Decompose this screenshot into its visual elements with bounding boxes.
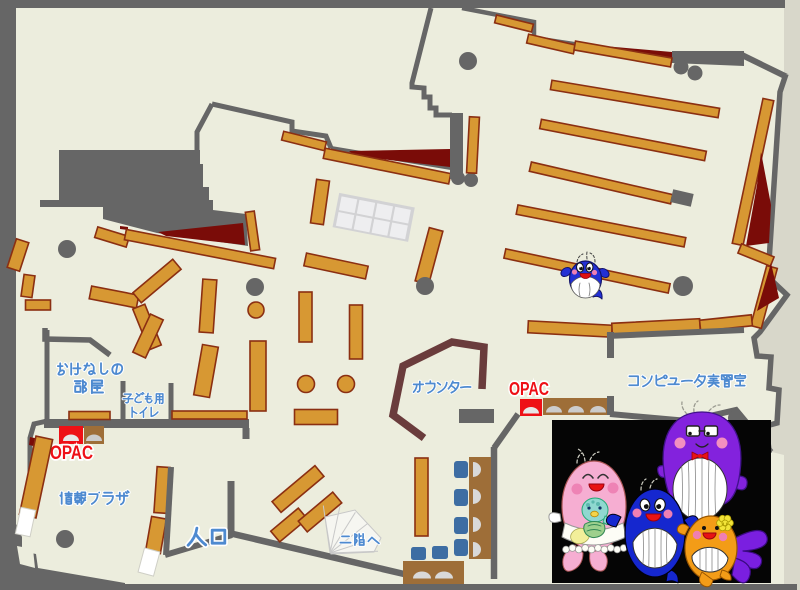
svg-text:OPAC: OPAC [50,443,93,464]
svg-text:OPAC: OPAC [509,379,549,399]
